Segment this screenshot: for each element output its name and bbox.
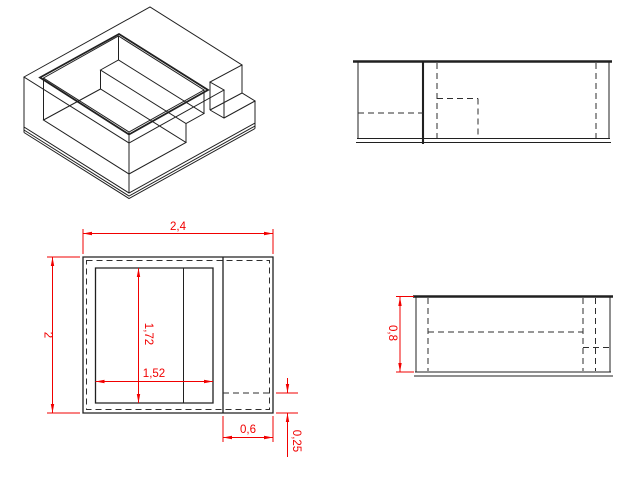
side-elevation-view: 0,8 — [386, 297, 613, 377]
dimension-label-cavity-width: 1,52 — [143, 368, 165, 380]
plan-solid-edges — [83, 257, 273, 413]
isometric-view — [24, 7, 255, 199]
technical-drawing-canvas: 2,4 2 1,72 1,52 0,6 — [0, 0, 631, 480]
plan-view: 2,4 2 1,72 1,52 0,6 — [42, 221, 303, 457]
dimension-label-height-total: 0,8 — [386, 325, 398, 341]
dim-step-width: 0,6 — [223, 416, 273, 442]
technical-drawing-page: 2,4 2 1,72 1,52 0,6 — [0, 0, 631, 480]
rear-hidden-edges — [358, 63, 596, 138]
dimension-label-step-depth: 0,25 — [290, 430, 302, 452]
dim-height-total: 0,8 — [386, 297, 414, 373]
isometric-outline-edges — [24, 7, 255, 199]
dim-step-depth: 0,25 — [276, 378, 302, 457]
dim-cavity-width: 1,52 — [96, 368, 214, 383]
dim-width-total: 2,4 — [83, 221, 273, 254]
dimension-label-depth-total: 2 — [42, 332, 54, 338]
rear-elevation-view — [353, 61, 612, 145]
dim-cavity-depth: 1,72 — [137, 268, 154, 403]
dimension-label-width-total: 2,4 — [170, 221, 187, 233]
rear-solid-edges — [356, 62, 611, 143]
plan-hidden-edges — [87, 261, 274, 410]
dimension-arrows — [286, 384, 289, 422]
dimension-label-cavity-depth: 1,72 — [142, 323, 154, 345]
dim-depth-total: 2 — [42, 257, 81, 413]
dimension-label-step-width: 0,6 — [240, 424, 256, 436]
side-hidden-edges — [428, 298, 610, 371]
